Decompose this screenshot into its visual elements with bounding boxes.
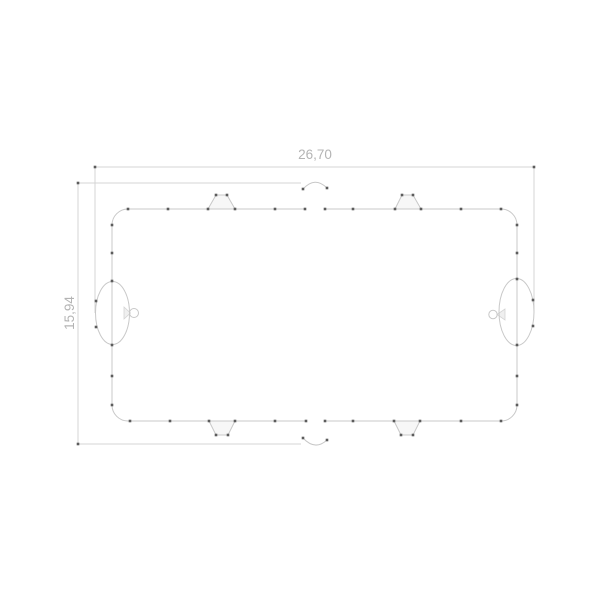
vertex-dot [167,208,170,211]
vertex-dot [111,404,114,407]
tab-top-left [208,195,235,209]
tab-top-right [395,195,421,209]
vertex-dot [208,420,211,423]
vertex-dot [95,326,98,329]
vertex-dot [516,404,519,407]
vertex-dot [274,208,277,211]
vertex-dot [533,166,536,169]
vertex-dot [324,208,327,211]
vertex-dot [129,420,132,423]
dim-height-label: 15,94 [62,296,77,330]
vertex-dot [77,443,80,446]
vertex-dots [77,166,536,446]
vertex-dot [516,344,519,347]
vertex-dot [352,420,355,423]
vertex-dot [305,420,308,423]
boss-neck-right [497,309,505,320]
dimension-width: 26,70 [95,147,534,313]
vertex-dot [302,188,305,191]
vertex-dot [169,420,172,423]
tab-bottom-right [394,421,420,435]
vertex-dot [516,224,519,227]
vertex-dot [302,437,305,440]
drawing-canvas: 26,70 15,94 [0,0,600,600]
vertex-dot [94,166,97,169]
vertex-dot [394,208,397,211]
part-arc-notches [303,182,327,445]
vertex-dot [77,182,80,185]
part-outline-right-half [325,209,517,421]
vertex-dot [111,252,114,255]
vertex-dot [516,278,519,281]
vertex-dot [500,208,503,211]
vertex-dot [393,420,396,423]
pin-circle-right [489,310,497,318]
part-side-bosses [96,279,535,346]
vertex-dot [532,299,535,302]
vertex-dot [516,252,519,255]
vertex-dot [215,194,218,197]
vertex-dot [401,194,404,197]
tab-bottom-left [209,421,235,435]
vertex-dot [127,208,130,211]
vertex-dot [95,300,98,303]
vertex-dot [326,439,329,442]
vertex-dot [412,194,415,197]
vertex-dot [420,208,423,211]
vertex-dot [207,208,210,211]
vertex-dot [324,420,327,423]
vertex-dot [400,434,403,437]
part-outline-left-half [112,209,306,421]
dim-width-label: 26,70 [298,147,332,162]
part-tabs [208,195,421,435]
vertex-dot [234,420,237,423]
vertex-dot [226,194,229,197]
dimension-height: 15,94 [62,183,301,444]
vertex-dot [111,280,114,283]
vertex-dot [352,208,355,211]
vertex-dot [227,434,230,437]
arc-notch-top [303,182,327,189]
vertex-dot [460,208,463,211]
vertex-dot [419,420,422,423]
vertex-dot [326,187,329,190]
vertex-dot [274,420,277,423]
vertex-dot [532,325,535,328]
cad-sketch-svg: 26,70 15,94 [0,0,600,600]
vertex-dot [111,375,114,378]
vertex-dot [516,375,519,378]
vertex-dot [412,434,415,437]
part-outline [112,209,517,421]
vertex-dot [111,224,114,227]
arc-notch-bottom [303,438,327,445]
vertex-dot [304,208,307,211]
vertex-dot [460,420,463,423]
vertex-dot [234,208,237,211]
vertex-dot [111,344,114,347]
vertex-dot [215,434,218,437]
vertex-dot [500,420,503,423]
